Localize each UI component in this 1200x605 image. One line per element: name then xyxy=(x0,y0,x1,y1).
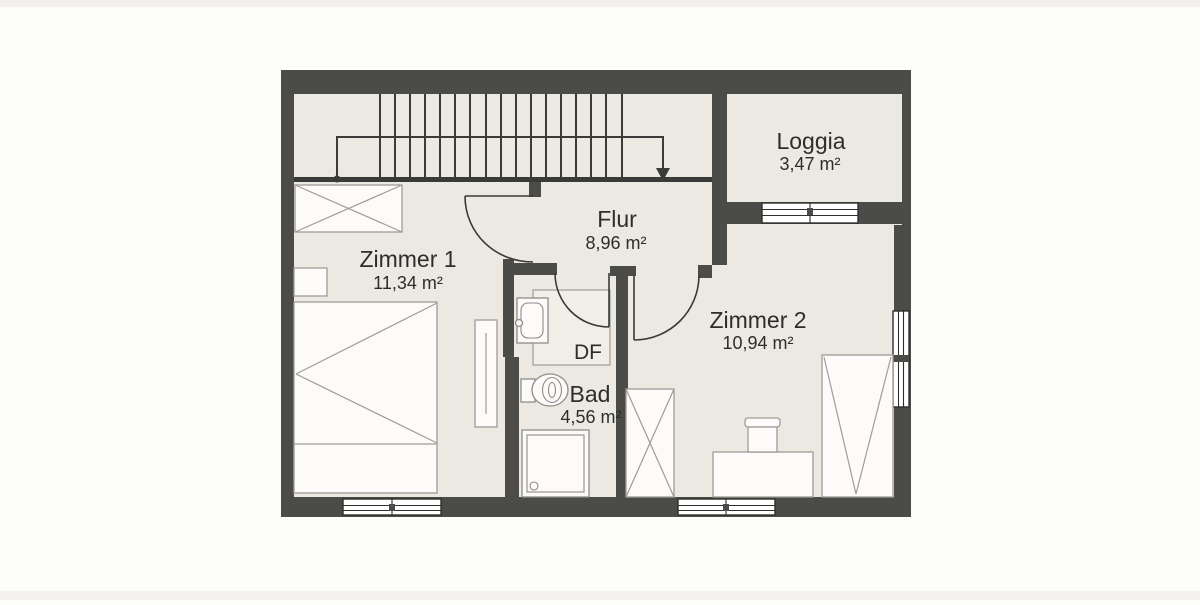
loggia-label: Loggia xyxy=(776,128,845,154)
window-icon-loggia-door xyxy=(762,203,858,223)
wardrobe-icon xyxy=(295,185,402,232)
wall-zimmer1-bad-lower xyxy=(505,357,519,500)
wall-zimmer2-door-jamb xyxy=(698,265,712,278)
loggia-area: 3,47 m² xyxy=(779,154,840,174)
wall-left xyxy=(281,70,294,517)
washbasin-icon xyxy=(516,298,549,343)
nightstand-icon xyxy=(294,268,327,296)
zimmer1-label: Zimmer 1 xyxy=(359,246,456,272)
wall-loggia-left xyxy=(712,70,727,265)
floor-plan-canvas: Zimmer 1 11,34 m² Flur 8,96 m² Loggia 3,… xyxy=(0,0,1200,600)
bad-label: Bad xyxy=(570,381,611,407)
double-bed-icon xyxy=(294,302,437,493)
bad-area: 4,56 m² xyxy=(560,407,621,427)
desk-icon xyxy=(713,452,813,497)
window-icon-zimmer2-east xyxy=(893,311,909,407)
wall-loggia-right xyxy=(902,70,911,225)
window-icon-zimmer2-south xyxy=(678,499,775,515)
zimmer1-area: 11,34 m² xyxy=(373,273,443,293)
toilet-icon xyxy=(521,374,568,406)
stair-edge-wall xyxy=(294,177,712,182)
zimmer2-area: 10,94 m² xyxy=(722,333,793,353)
zimmer2-label: Zimmer 2 xyxy=(709,307,806,333)
df-label: DF xyxy=(574,341,602,364)
desk-chair-icon xyxy=(745,418,780,452)
floor-plan: Zimmer 1 11,34 m² Flur 8,96 m² Loggia 3,… xyxy=(0,0,1200,605)
single-bed-icon xyxy=(822,355,893,497)
wall-top xyxy=(281,70,911,94)
window-icon-zimmer1-south xyxy=(343,499,441,515)
flur-label: Flur xyxy=(597,206,637,232)
flur-area: 8,96 m² xyxy=(585,233,646,253)
wall-zimmer1-bad-upper xyxy=(503,259,514,357)
shelf-icon xyxy=(475,320,497,427)
wardrobe-icon xyxy=(626,389,674,497)
wall-zimmer1-door-stub xyxy=(529,182,541,197)
shower-icon xyxy=(522,430,589,497)
